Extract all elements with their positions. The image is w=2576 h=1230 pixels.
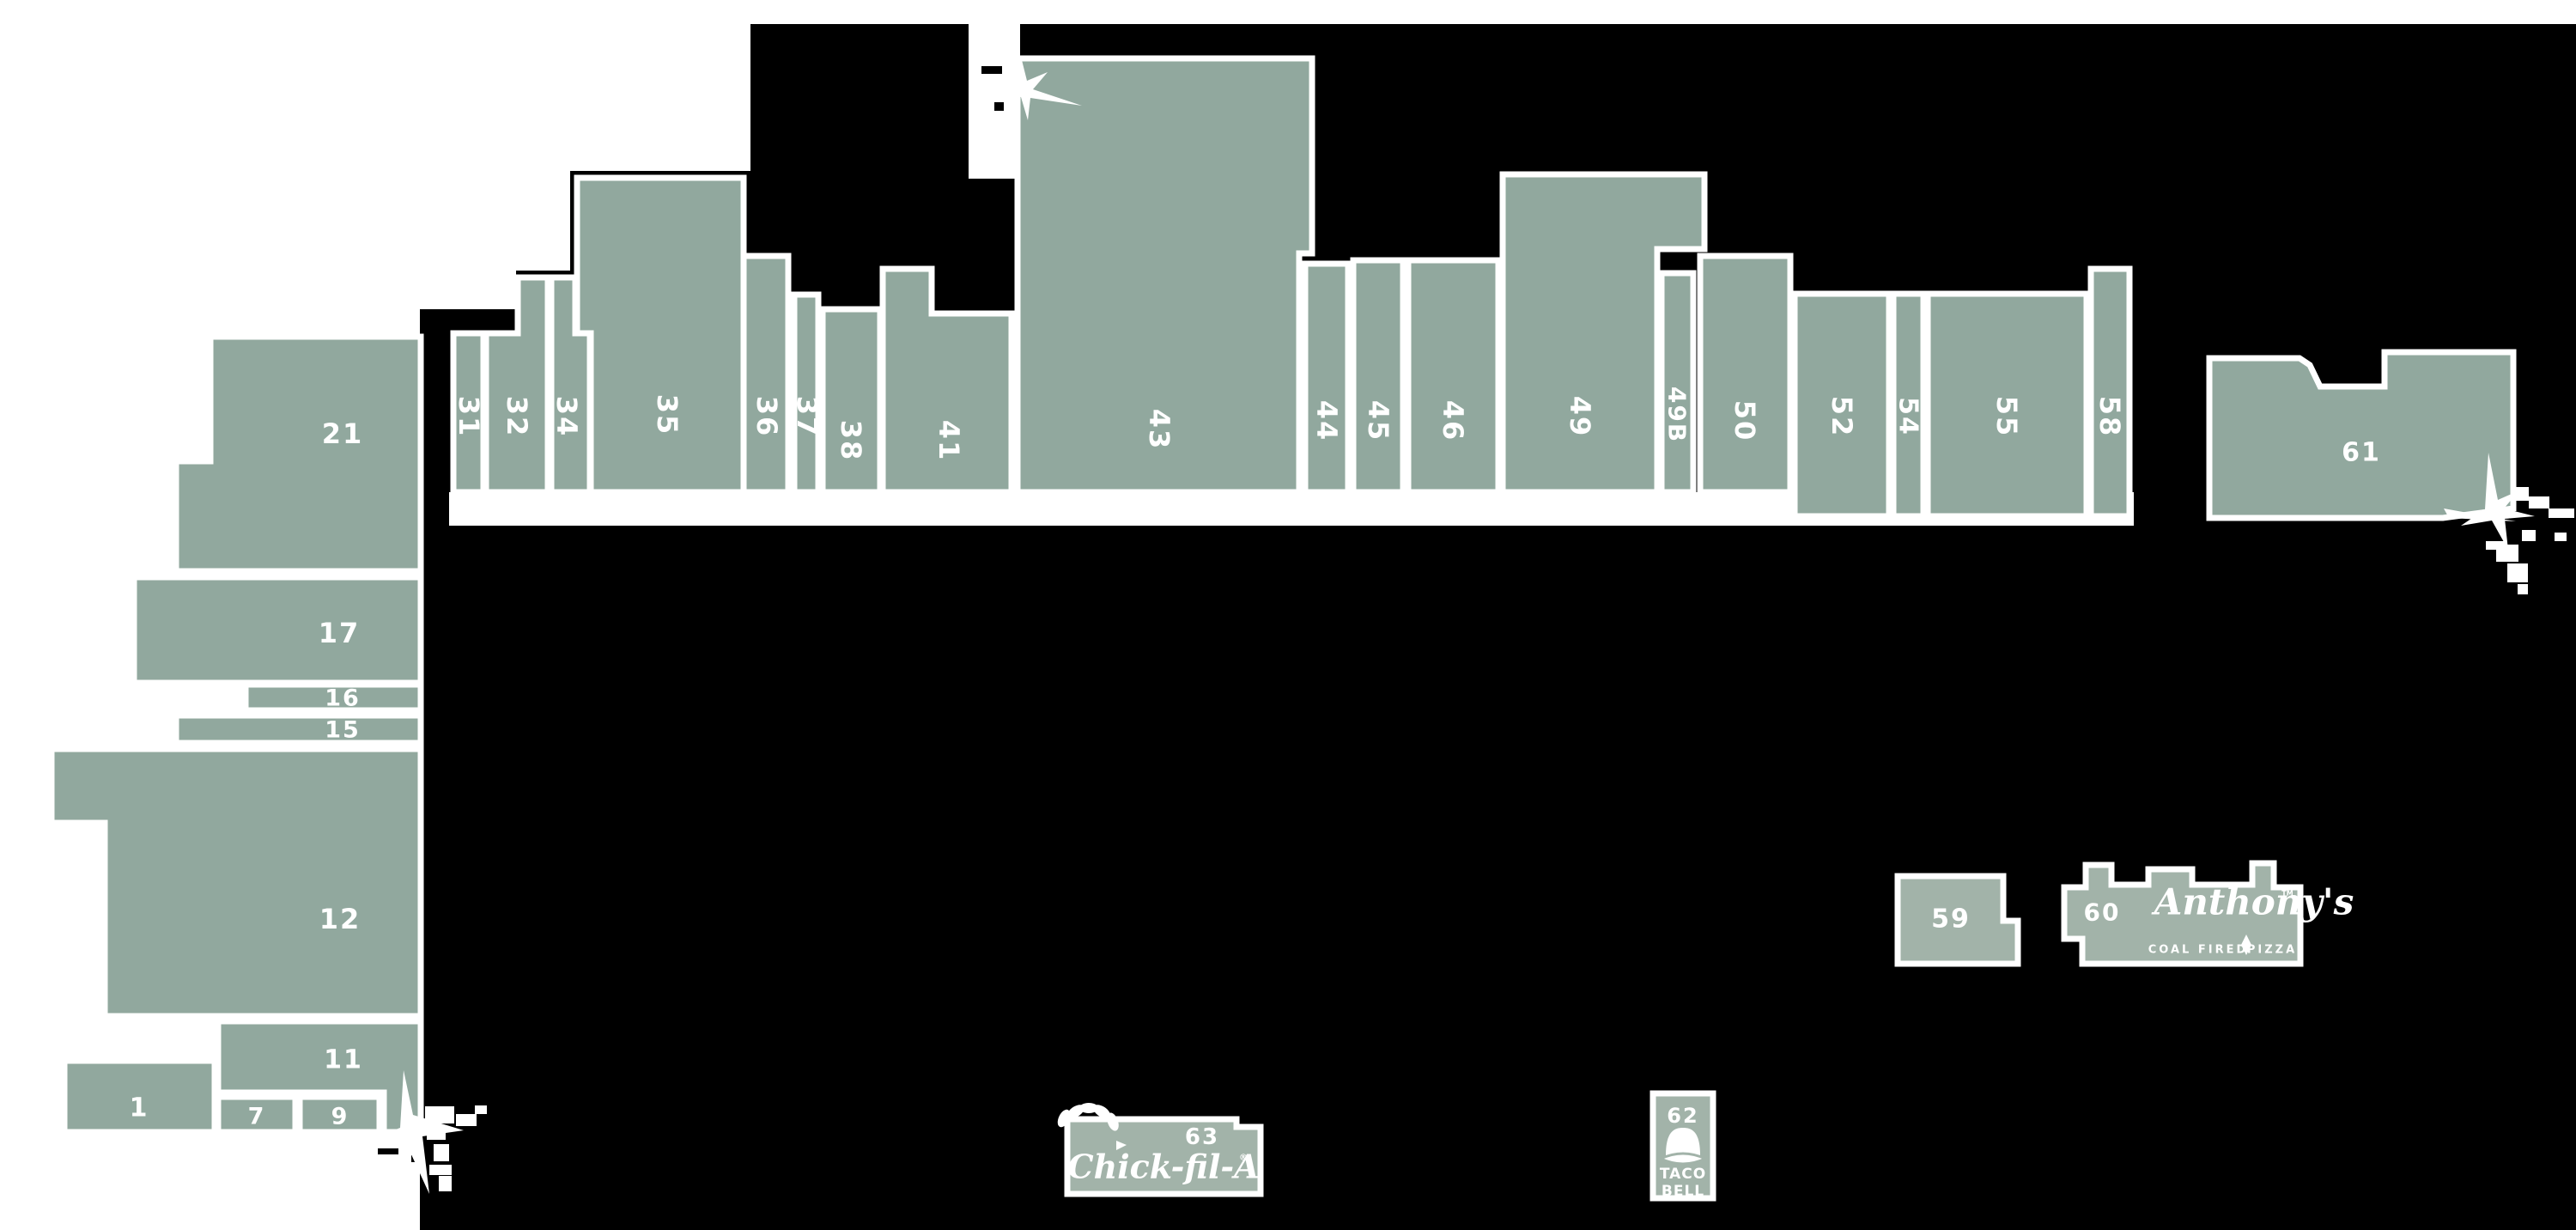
store-label-38: 38	[835, 420, 867, 462]
store-label-44: 44	[1310, 400, 1343, 442]
store-label-60: 60	[2084, 898, 2121, 927]
store-label-63: 63	[1185, 1124, 1219, 1150]
store-55[interactable]: 55	[1928, 294, 2087, 516]
store-label-46: 46	[1437, 400, 1469, 442]
store-label-49: 49	[1564, 396, 1596, 438]
chick-fil-a-registered-mark: ®	[1239, 1154, 1248, 1163]
anthonys-trademark: TM	[2281, 890, 2293, 898]
taco-bell-word-bell: BELL	[1662, 1183, 1704, 1200]
store-shape-46[interactable]	[1408, 260, 1498, 492]
store-label-16: 16	[325, 685, 361, 712]
store-label-41: 41	[933, 420, 965, 462]
store-50[interactable]: 50	[1700, 256, 1790, 492]
white-strip-left-of-43	[969, 24, 1020, 179]
store-label-11: 11	[324, 1045, 363, 1075]
store-52[interactable]: 52	[1795, 294, 1889, 516]
store-35[interactable]: 35	[577, 178, 744, 492]
starburst-bottom-left-fragment-6	[439, 1176, 452, 1191]
store-36[interactable]: 36	[744, 256, 788, 492]
store-shape-21[interactable]	[176, 337, 421, 571]
store-38[interactable]: 38	[823, 309, 880, 492]
store-label-15: 15	[325, 717, 361, 744]
starburst-right-fragment-6	[2507, 563, 2528, 582]
store-9[interactable]: 9	[300, 1097, 380, 1132]
store-37[interactable]: 37	[791, 295, 823, 492]
store-label-32: 32	[501, 396, 533, 438]
store-shape-15[interactable]	[176, 715, 421, 743]
store-shape-36[interactable]	[744, 256, 788, 492]
store-58[interactable]: 58	[2091, 269, 2129, 516]
store-12[interactable]: 12	[52, 749, 421, 1016]
starburst-right-fragment-0	[2513, 487, 2529, 501]
road-dash-2	[378, 1148, 398, 1154]
road-dash-0	[981, 66, 1002, 74]
store-label-31: 31	[453, 396, 485, 438]
anthonys-tagline-pizza: PIZZA	[2247, 944, 2297, 957]
store-label-49B: 49B	[1663, 387, 1692, 443]
store-45[interactable]: 45	[1353, 260, 1403, 492]
store-59[interactable]: 59	[1898, 876, 2018, 964]
store-label-54: 54	[1893, 397, 1923, 436]
store-17[interactable]: 17	[134, 577, 421, 683]
store-label-62: 62	[1667, 1104, 1698, 1128]
store-label-12: 12	[319, 903, 361, 935]
store-label-50: 50	[1728, 400, 1761, 442]
store-shape-35[interactable]	[577, 178, 744, 492]
store-shape-45[interactable]	[1353, 260, 1403, 492]
taco-bell-word-taco: TACO	[1660, 1166, 1706, 1183]
store-label-37: 37	[791, 396, 823, 438]
starburst-right-fragment-2	[2549, 508, 2574, 518]
store-7[interactable]: 7	[218, 1097, 295, 1132]
store-16[interactable]: 16	[246, 685, 421, 712]
store-shape-44[interactable]	[1305, 264, 1348, 492]
starburst-right-fragment-7	[2518, 584, 2528, 594]
starburst-right-fragment-8	[2555, 533, 2567, 541]
store-label-7: 7	[248, 1104, 266, 1130]
store-15[interactable]: 15	[176, 715, 421, 744]
site-map: 2117161512117913132343536373841434445464…	[0, 0, 2576, 1230]
taco-bell-swoosh-icon	[1661, 1154, 1705, 1164]
starburst-bottom-left-fragment-3	[427, 1128, 446, 1140]
store-label-34: 34	[550, 396, 583, 438]
store-label-21: 21	[322, 417, 364, 450]
starburst-bottom-left-fragment-2	[475, 1105, 487, 1114]
store-label-17: 17	[319, 617, 361, 649]
store-shape-49B[interactable]	[1662, 273, 1693, 492]
store-44[interactable]: 44	[1305, 264, 1348, 492]
starburst-right-fragment-3	[2522, 530, 2536, 541]
store-label-9: 9	[331, 1104, 349, 1130]
starburst-bottom-left-fragment-1	[456, 1114, 477, 1126]
store-label-58: 58	[2093, 396, 2126, 438]
store-label-52: 52	[1826, 396, 1858, 438]
store-31[interactable]: 31	[453, 333, 485, 492]
anthonys-script-logo: Anthony's	[2151, 881, 2354, 923]
store-62[interactable]: 62TACOBELL	[1653, 1093, 1713, 1200]
chick-fil-a-script-logo: Chick-fil-A	[1067, 1148, 1259, 1186]
store-46[interactable]: 46	[1408, 260, 1498, 492]
starburst-right-fragment-5	[2496, 545, 2518, 562]
store-43[interactable]: 43	[1018, 58, 1312, 492]
store-54[interactable]: 54	[1893, 294, 1924, 516]
store-49B[interactable]: 49B	[1662, 273, 1693, 492]
store-label-43: 43	[1143, 409, 1176, 451]
store-shape-38[interactable]	[823, 309, 880, 492]
store-label-1: 1	[130, 1093, 149, 1123]
road-dash-1	[994, 102, 1004, 111]
store-shape-17[interactable]	[134, 577, 421, 683]
store-label-36: 36	[750, 396, 783, 438]
store-shape-37[interactable]	[794, 295, 818, 492]
store-label-61: 61	[2342, 438, 2381, 468]
store-21[interactable]: 21	[176, 337, 421, 571]
starburst-bottom-left-fragment-4	[434, 1144, 449, 1161]
store-shape-50[interactable]	[1700, 256, 1790, 492]
starburst-bottom-left-fragment-0	[425, 1106, 454, 1123]
store-shape-58[interactable]	[2091, 269, 2129, 516]
starburst-bottom-left-fragment-5	[429, 1165, 452, 1175]
store-label-55: 55	[1990, 396, 2023, 438]
store-label-59: 59	[1931, 904, 1971, 935]
store-label-35: 35	[651, 394, 683, 436]
anthonys-tagline-coal-fired: COAL FIRED	[2148, 944, 2249, 957]
store-1[interactable]: 1	[64, 1061, 215, 1132]
store-shape-12[interactable]	[52, 749, 421, 1016]
starburst-right-fragment-1	[2529, 496, 2549, 508]
store-label-45: 45	[1362, 400, 1394, 442]
